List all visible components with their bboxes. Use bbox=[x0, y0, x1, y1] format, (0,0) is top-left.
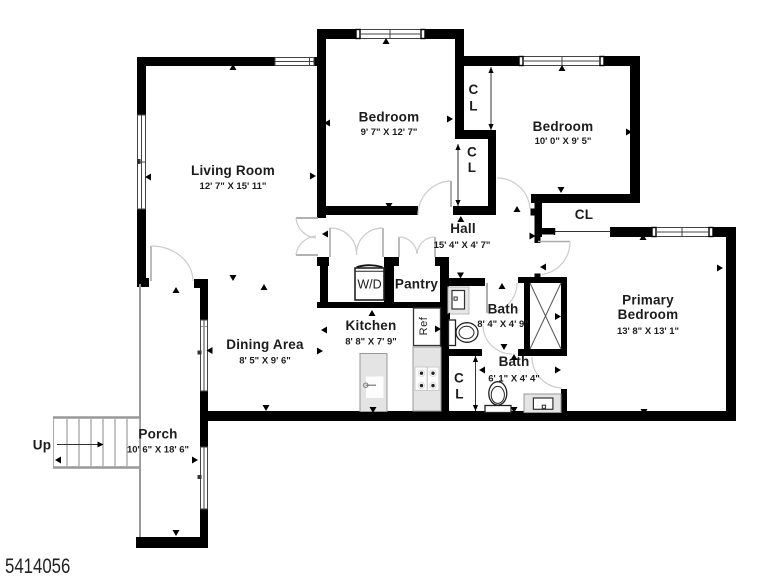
svg-text:Bedroom: Bedroom bbox=[359, 110, 420, 125]
svg-text:C: C bbox=[469, 82, 479, 97]
svg-text:Living Room: Living Room bbox=[191, 163, 275, 178]
svg-text:13' 8" X 13' 1": 13' 8" X 13' 1" bbox=[617, 326, 679, 337]
svg-text:Bedroom: Bedroom bbox=[618, 307, 679, 322]
svg-text:15' 4" X 4' 7": 15' 4" X 4' 7" bbox=[434, 240, 491, 251]
svg-text:Pantry: Pantry bbox=[395, 277, 439, 292]
svg-text:Ref: Ref bbox=[418, 316, 430, 335]
svg-text:CL: CL bbox=[575, 207, 593, 222]
svg-text:Bedroom: Bedroom bbox=[533, 119, 594, 134]
svg-text:8' 5" X 9' 6": 8' 5" X 9' 6" bbox=[239, 356, 291, 367]
svg-text:5414056: 5414056 bbox=[5, 555, 70, 578]
svg-text:Primary: Primary bbox=[622, 293, 674, 308]
svg-text:Bath: Bath bbox=[488, 302, 519, 317]
svg-text:C: C bbox=[467, 145, 477, 160]
svg-text:Up: Up bbox=[33, 438, 51, 453]
svg-text:Kitchen: Kitchen bbox=[346, 318, 397, 333]
svg-text:W/D: W/D bbox=[357, 278, 381, 292]
svg-text:6' 1" X 4' 4": 6' 1" X 4' 4" bbox=[488, 374, 540, 385]
svg-text:Porch: Porch bbox=[138, 427, 177, 442]
svg-text:9' 7" X 12' 7": 9' 7" X 12' 7" bbox=[361, 127, 418, 138]
svg-text:C: C bbox=[454, 371, 464, 386]
svg-text:Dining Area: Dining Area bbox=[226, 337, 304, 352]
svg-text:10' 6" X 18' 6": 10' 6" X 18' 6" bbox=[127, 445, 189, 456]
svg-text:8' 8" X 7' 9": 8' 8" X 7' 9" bbox=[345, 337, 397, 348]
svg-text:L: L bbox=[469, 99, 477, 114]
svg-text:Hall: Hall bbox=[450, 221, 476, 236]
svg-text:L: L bbox=[468, 160, 476, 175]
svg-text:L: L bbox=[455, 387, 463, 402]
svg-text:12' 7" X 15' 11": 12' 7" X 15' 11" bbox=[200, 181, 267, 192]
svg-text:10' 0" X 9' 5": 10' 0" X 9' 5" bbox=[535, 136, 592, 147]
svg-text:8' 4" X 4' 9": 8' 4" X 4' 9" bbox=[477, 319, 529, 330]
